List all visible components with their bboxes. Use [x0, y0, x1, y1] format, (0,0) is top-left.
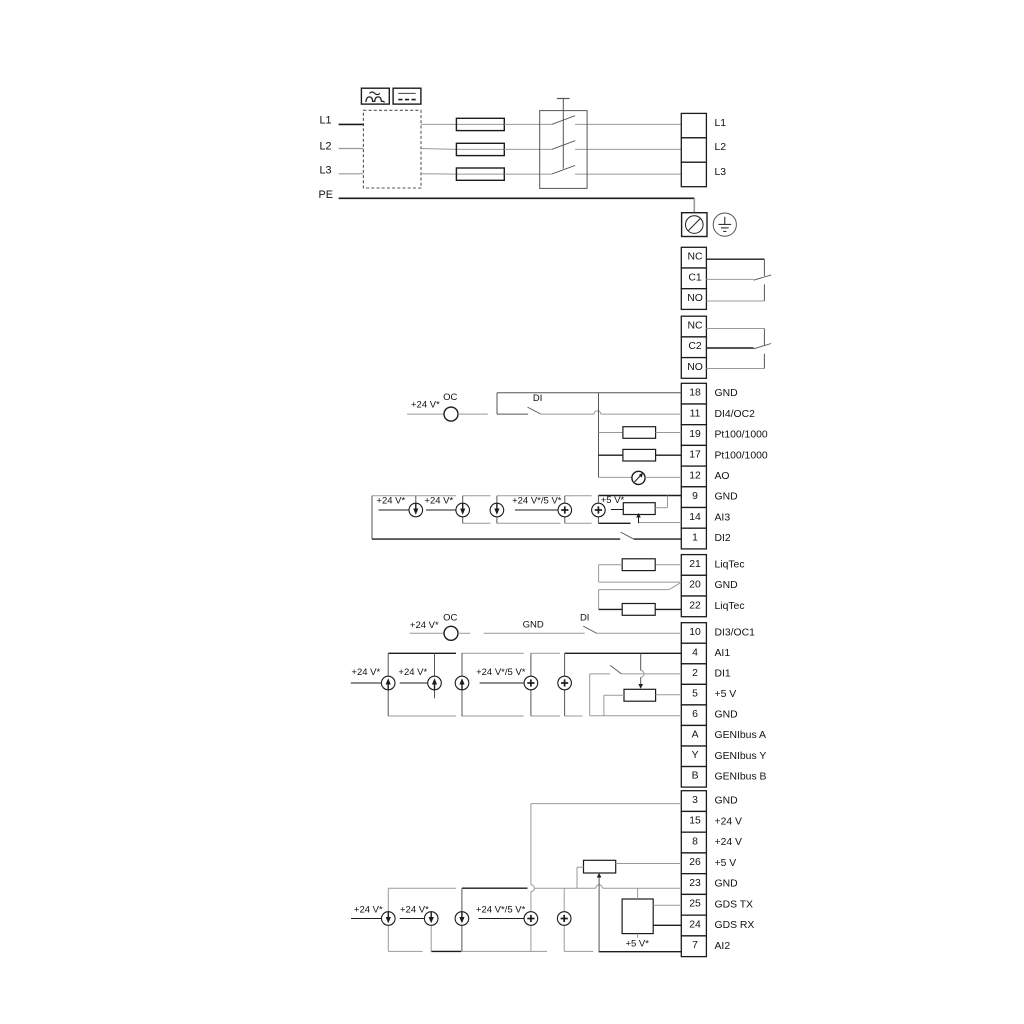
svg-text:12: 12	[689, 470, 701, 481]
svg-text:+5 V: +5 V	[715, 689, 737, 700]
svg-text:AO: AO	[715, 471, 730, 482]
svg-text:+5 V*: +5 V*	[625, 938, 649, 949]
svg-text:GENIbus A: GENIbus A	[715, 730, 766, 741]
svg-text:23: 23	[689, 878, 701, 889]
svg-text:26: 26	[689, 857, 701, 868]
svg-text:GND: GND	[523, 620, 544, 631]
svg-text:20: 20	[689, 580, 701, 591]
svg-text:18: 18	[689, 388, 701, 399]
svg-text:LiqTec: LiqTec	[715, 559, 745, 570]
svg-text:GND: GND	[715, 879, 738, 890]
svg-text:+24 V: +24 V	[715, 837, 743, 848]
svg-text:4: 4	[692, 647, 698, 658]
svg-text:11: 11	[690, 408, 701, 419]
svg-text:Pt100/1000: Pt100/1000	[715, 450, 768, 461]
svg-text:+5 V: +5 V	[715, 858, 737, 869]
svg-text:DI3/OC1: DI3/OC1	[715, 627, 756, 638]
svg-text:NO: NO	[687, 293, 703, 304]
svg-text:+24 V*: +24 V*	[398, 667, 427, 678]
svg-text:GND: GND	[715, 796, 738, 807]
svg-text:GND: GND	[715, 492, 738, 503]
svg-text:+24 V*/5 V*: +24 V*/5 V*	[476, 905, 526, 916]
svg-text:1: 1	[692, 532, 698, 543]
svg-text:A: A	[692, 730, 699, 741]
svg-text:GND: GND	[715, 388, 738, 399]
svg-text:19: 19	[689, 429, 701, 440]
svg-text:24: 24	[689, 919, 701, 930]
svg-text:Y: Y	[692, 750, 699, 761]
svg-text:+24 V*: +24 V*	[351, 667, 380, 678]
svg-text:L3: L3	[320, 165, 332, 177]
svg-text:+24 V*: +24 V*	[354, 905, 383, 916]
svg-text:Pt100/1000: Pt100/1000	[715, 430, 768, 441]
svg-text:LiqTec: LiqTec	[715, 601, 745, 612]
svg-text:GND: GND	[715, 710, 738, 721]
svg-text:DI1: DI1	[715, 669, 731, 680]
svg-text:L1: L1	[715, 118, 727, 129]
svg-text:+24 V*: +24 V*	[410, 620, 439, 631]
svg-text:DI: DI	[580, 612, 590, 623]
svg-text:17: 17	[689, 450, 701, 461]
svg-text:+5 V*: +5 V*	[601, 495, 625, 506]
svg-text:OC: OC	[443, 392, 457, 403]
svg-text:DI: DI	[533, 393, 543, 404]
svg-text:OC: OC	[443, 612, 457, 623]
svg-text:PE: PE	[319, 189, 333, 201]
svg-text:+24 V*: +24 V*	[411, 400, 440, 411]
svg-text:8: 8	[692, 836, 698, 847]
svg-text:NC: NC	[688, 252, 704, 263]
svg-text:5: 5	[692, 689, 698, 700]
svg-text:7: 7	[692, 940, 698, 951]
svg-text:L3: L3	[715, 167, 727, 178]
svg-text:L1: L1	[320, 114, 332, 126]
svg-text:14: 14	[689, 512, 701, 523]
svg-text:22: 22	[689, 600, 701, 611]
svg-text:NC: NC	[688, 320, 704, 331]
svg-text:C2: C2	[688, 341, 702, 352]
svg-text:L2: L2	[715, 142, 727, 153]
svg-text:2: 2	[692, 668, 698, 679]
svg-text:AI1: AI1	[715, 648, 731, 659]
svg-text:3: 3	[692, 795, 698, 806]
svg-text:15: 15	[689, 816, 701, 827]
svg-text:GENIbus Y: GENIbus Y	[715, 751, 767, 762]
svg-text:10: 10	[689, 627, 701, 638]
svg-text:L2: L2	[320, 140, 332, 152]
svg-text:+24 V*: +24 V*	[424, 496, 453, 507]
svg-text:+24 V*: +24 V*	[376, 496, 405, 507]
svg-text:DI2: DI2	[715, 533, 731, 544]
svg-text:GND: GND	[715, 580, 738, 591]
svg-text:+24 V*/5 V*: +24 V*/5 V*	[512, 496, 562, 507]
svg-text:GDS TX: GDS TX	[715, 899, 754, 910]
svg-text:DI4/OC2: DI4/OC2	[715, 409, 756, 420]
svg-text:+24 V*/5 V*: +24 V*/5 V*	[476, 667, 526, 678]
svg-text:C1: C1	[688, 272, 702, 283]
svg-text:AI3: AI3	[715, 512, 731, 523]
svg-text:9: 9	[692, 491, 698, 502]
svg-text:+24 V*: +24 V*	[400, 905, 429, 916]
svg-text:NO: NO	[687, 362, 703, 373]
svg-text:AI2: AI2	[715, 941, 731, 952]
svg-text:GENIbus B: GENIbus B	[715, 771, 767, 782]
svg-text:GDS RX: GDS RX	[715, 920, 755, 931]
svg-text:21: 21	[689, 559, 701, 570]
svg-text:25: 25	[689, 899, 701, 910]
svg-text:B: B	[692, 771, 699, 782]
svg-text:6: 6	[692, 709, 698, 720]
svg-text:+24 V: +24 V	[715, 816, 743, 827]
